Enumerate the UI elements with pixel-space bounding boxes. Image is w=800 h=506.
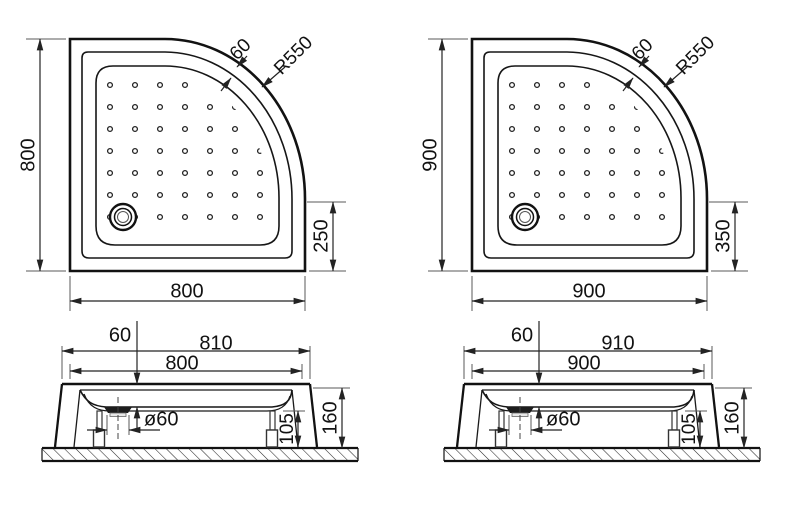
diagram-tray-800: 800 800 60 R550 250 60 810 800 ø60 105 1… [17,32,358,461]
plan-rim-width-label: 60 [628,35,658,65]
tray-800-plan-view: 800 800 60 R550 250 [17,32,346,311]
plan-bottom-dim-label: 800 [170,280,203,302]
diagram-tray-900: 900 900 60 R550 350 60 910 900 ø60 105 1… [419,32,760,461]
section-depth-label: 60 [511,324,533,346]
section-total-height-label: 160 [721,401,743,434]
tray-900-section-view: 60 910 900 ø60 105 160 [444,321,760,461]
section-overall-width-label: 810 [199,332,232,354]
tray-800-section-view: 60 810 800 ø60 105 160 [42,321,358,461]
shower-tray-dimension-drawing: 800 800 60 R550 250 60 810 800 ø60 105 1… [0,0,800,506]
section-leg-height-label: 105 [679,413,700,445]
tray-900-plan-view: 900 900 60 R550 350 [419,32,748,311]
section-overall-width-label: 910 [601,332,634,354]
technical-drawing-page: 800 800 60 R550 250 60 810 800 ø60 105 1… [0,0,800,506]
plan-straight-edge-label: 350 [712,219,734,252]
section-width-label: 800 [165,352,198,374]
section-drain-diameter-label: ø60 [546,408,580,430]
section-drain-diameter-label: ø60 [144,408,178,430]
plan-corner-radius-label: R550 [270,32,317,79]
section-total-height-label: 160 [319,401,341,434]
plan-bottom-dim-label: 900 [572,280,605,302]
plan-side-dim-label: 900 [419,138,441,171]
section-leg-height-label: 105 [277,413,298,445]
section-width-label: 900 [567,352,600,374]
plan-corner-radius-label: R550 [672,32,719,79]
section-depth-label: 60 [109,324,131,346]
plan-rim-width-label: 60 [226,35,256,65]
plan-straight-edge-label: 250 [310,219,332,252]
plan-side-dim-label: 800 [17,138,39,171]
